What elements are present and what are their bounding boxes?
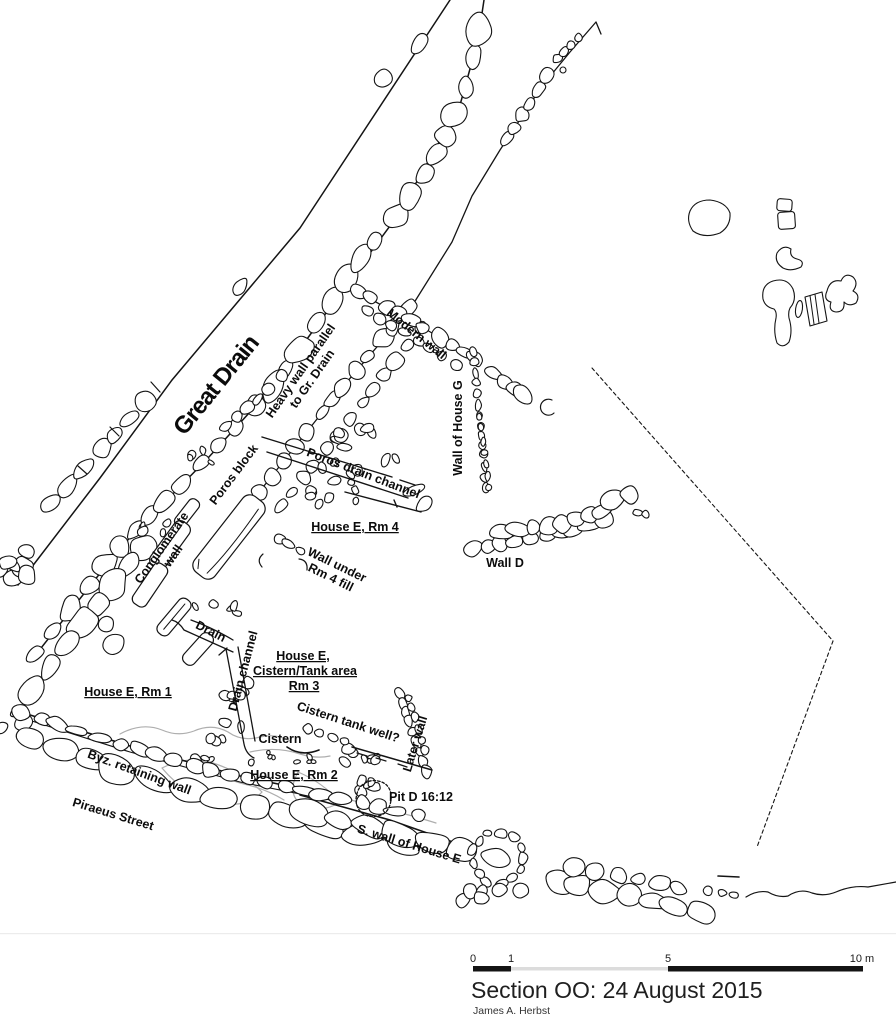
label-great-drain: Great Drain — [168, 330, 265, 440]
label-piraeus: Piraeus Street — [71, 795, 156, 833]
scale-tick-1: 1 — [508, 953, 514, 965]
label-rm3-line1: House E, — [276, 649, 330, 663]
label-house-e-rm2: House E, Rm 2 — [250, 768, 338, 782]
label-wall-house-g: Wall of House G — [451, 380, 465, 475]
feature-outlines — [0, 67, 896, 934]
scale-bar-segment-5-10 — [668, 966, 863, 972]
label-rm3-line3: Rm 3 — [289, 679, 320, 693]
label-cistern-tank-well: Cistern tank well? — [295, 699, 401, 745]
author-credit: James A. Herbst — [473, 1005, 550, 1017]
site-plan: Great Drain Heavy wall parallel to Gr. D… — [0, 0, 896, 1024]
page-title: Section OO: 24 August 2015 — [471, 977, 763, 1003]
scale-bar-segment-1-5 — [511, 967, 668, 971]
label-house-e-rm1: House E, Rm 1 — [84, 685, 172, 699]
scale-tick-0: 0 — [470, 953, 476, 965]
label-rm3-line2: Cistern/Tank area — [253, 664, 358, 678]
scale-bar: 0 1 5 10 m — [470, 953, 874, 972]
label-cistern: Cistern — [258, 732, 301, 746]
title-block: Section OO: 24 August 2015 James A. Herb… — [471, 977, 763, 1017]
scale-bar-segment-0-1 — [473, 966, 511, 972]
scale-tick-10m: 10 m — [850, 953, 874, 965]
label-pit: Pit D 16:12 — [389, 790, 453, 804]
label-house-e-rm4: House E, Rm 4 — [311, 520, 399, 534]
label-wall-d: Wall D — [486, 556, 524, 570]
scale-tick-5: 5 — [665, 953, 671, 965]
